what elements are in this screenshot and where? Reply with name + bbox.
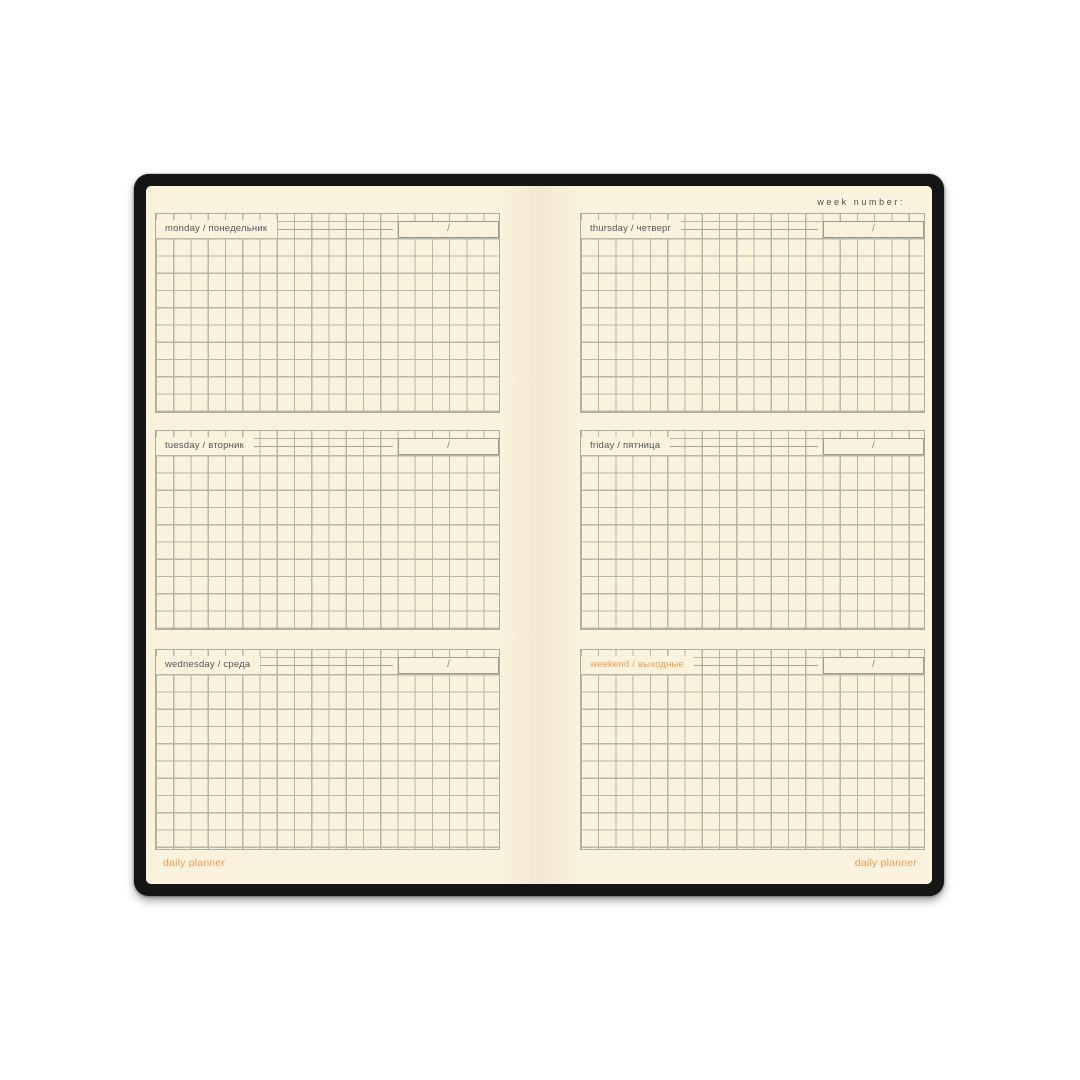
date-box: / [398,657,499,674]
day-header: wednesday / среда / [156,656,499,674]
day-label-tuesday: tuesday / вторник [156,437,254,455]
section-monday: monday / понедельник / [155,213,500,413]
section-friday: friday / пятница / [580,430,925,630]
date-box: / [823,657,924,674]
day-header: friday / пятница / [581,437,924,455]
day-label-wednesday: wednesday / среда [156,656,260,674]
brand-footer-right: daily planner [855,857,917,869]
date-slash: / [447,224,450,234]
header-rule [277,229,393,230]
date-box: / [823,221,924,238]
date-slash: / [872,660,875,670]
header-rule [670,446,818,447]
date-box: / [823,438,924,455]
week-number-label: week number: [580,197,905,207]
day-label-friday: friday / пятница [581,437,670,455]
brand-footer-left: daily planner [163,857,225,869]
day-header: weekend / выходные / [581,656,924,674]
date-slash: / [872,441,875,451]
date-slash: / [447,660,450,670]
day-label-weekend: weekend / выходные [581,656,694,674]
product-photo: week number: monday / понедельник / tues… [0,0,1080,1080]
header-rule [694,665,818,666]
section-weekend: weekend / выходные / [580,649,925,850]
date-box: / [398,221,499,238]
section-tuesday: tuesday / вторник / [155,430,500,630]
date-slash: / [872,224,875,234]
date-box: / [398,438,499,455]
header-rule [681,229,818,230]
day-label-monday: monday / понедельник [156,220,277,238]
day-header: thursday / четверг / [581,220,924,238]
day-header: monday / понедельник / [156,220,499,238]
date-slash: / [447,441,450,451]
section-wednesday: wednesday / среда / [155,649,500,850]
header-rule [254,446,393,447]
notebook-cover: week number: monday / понедельник / tues… [134,174,944,896]
day-header: tuesday / вторник / [156,437,499,455]
day-label-thursday: thursday / четверг [581,220,681,238]
header-rule [260,665,393,666]
section-thursday: thursday / четверг / [580,213,925,413]
